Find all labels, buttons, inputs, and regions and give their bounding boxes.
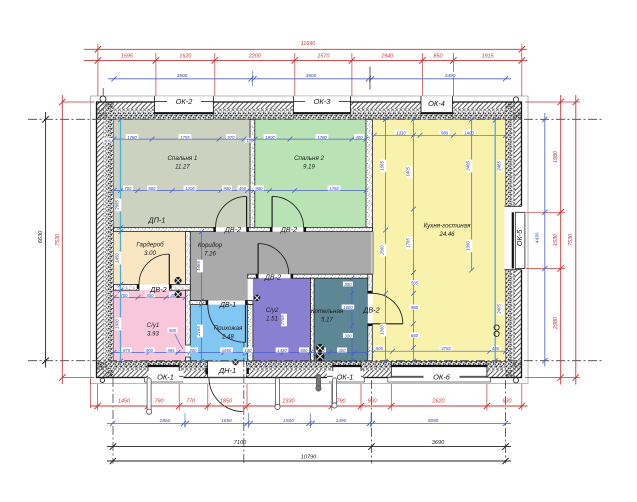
- svg-text:300: 300: [338, 348, 346, 353]
- svg-text:1650: 1650: [222, 348, 232, 353]
- svg-text:2620: 2620: [432, 398, 445, 404]
- svg-text:930: 930: [503, 398, 512, 404]
- svg-text:Спальня 1: Спальня 1: [167, 155, 197, 162]
- svg-text:2200: 2200: [248, 54, 261, 60]
- svg-text:Гардероб: Гардероб: [136, 242, 164, 249]
- svg-text:1.51: 1.51: [266, 317, 278, 323]
- svg-text:2980: 2980: [553, 317, 559, 330]
- svg-text:770: 770: [186, 398, 195, 404]
- svg-text:ДВ-2: ДВ-2: [264, 273, 281, 282]
- svg-text:700: 700: [124, 186, 132, 191]
- svg-text:ОК-1: ОК-1: [157, 372, 174, 381]
- svg-text:9.19: 9.19: [303, 165, 315, 171]
- svg-text:Котельная: Котельная: [311, 308, 344, 315]
- svg-text:1620: 1620: [179, 54, 191, 60]
- svg-text:ОК-3: ОК-3: [314, 97, 332, 106]
- svg-text:1400: 1400: [464, 130, 474, 135]
- svg-text:3.00: 3.00: [144, 251, 156, 257]
- svg-text:900: 900: [148, 186, 156, 191]
- svg-text:2465: 2465: [465, 161, 470, 172]
- svg-text:ОК-6: ОК-6: [433, 372, 451, 381]
- svg-text:2330: 2330: [282, 398, 295, 404]
- svg-text:6630: 6630: [38, 230, 44, 243]
- svg-text:1915: 1915: [482, 54, 495, 60]
- svg-text:1750: 1750: [329, 186, 339, 191]
- svg-text:2465: 2465: [497, 161, 502, 172]
- svg-text:505: 505: [411, 281, 419, 286]
- svg-text:ДВ-2: ДВ-2: [362, 306, 379, 315]
- svg-text:300: 300: [189, 348, 197, 353]
- svg-text:100: 100: [244, 348, 252, 353]
- svg-text:1600: 1600: [343, 305, 353, 310]
- svg-text:505: 505: [376, 346, 384, 351]
- svg-text:1450: 1450: [114, 253, 119, 263]
- svg-text:3690: 3690: [428, 418, 439, 424]
- svg-text:Кухня-гостиная: Кухня-гостиная: [424, 222, 471, 229]
- svg-text:790: 790: [155, 398, 164, 404]
- svg-text:985: 985: [167, 348, 175, 353]
- svg-text:1650: 1650: [221, 418, 232, 424]
- svg-text:3490: 3490: [445, 73, 456, 79]
- svg-text:ОК-5: ОК-5: [515, 229, 524, 246]
- svg-text:1500: 1500: [283, 418, 294, 424]
- svg-text:1060: 1060: [379, 325, 384, 335]
- svg-text:1930: 1930: [114, 319, 119, 329]
- svg-text:7100: 7100: [234, 440, 247, 446]
- svg-text:1800: 1800: [265, 135, 275, 140]
- svg-text:2405: 2405: [497, 304, 502, 315]
- svg-text:ДН-1: ДН-1: [218, 366, 236, 375]
- svg-text:1530: 1530: [553, 234, 559, 246]
- svg-text:1450: 1450: [118, 398, 130, 404]
- svg-text:3750: 3750: [441, 346, 451, 351]
- svg-text:860: 860: [411, 333, 419, 338]
- svg-text:10790: 10790: [301, 454, 317, 460]
- svg-text:2860: 2860: [159, 418, 171, 424]
- svg-text:1940: 1940: [381, 54, 393, 60]
- svg-text:700: 700: [120, 293, 128, 298]
- svg-text:1430: 1430: [277, 348, 287, 353]
- svg-text:ДВ-1: ДВ-1: [219, 300, 236, 309]
- svg-text:1310: 1310: [396, 130, 406, 135]
- svg-text:1780: 1780: [317, 135, 327, 140]
- svg-text:3800: 3800: [306, 73, 317, 79]
- svg-text:7.26: 7.26: [204, 252, 216, 258]
- svg-text:900: 900: [255, 186, 263, 191]
- svg-text:ОК-4: ОК-4: [428, 99, 445, 108]
- svg-text:5.17: 5.17: [321, 318, 333, 324]
- svg-text:400: 400: [104, 138, 111, 143]
- svg-text:850: 850: [434, 54, 443, 60]
- svg-text:ДВ-2: ДВ-2: [280, 225, 297, 234]
- svg-text:2985: 2985: [114, 200, 119, 211]
- svg-text:300: 300: [344, 334, 352, 339]
- svg-text:3800: 3800: [177, 73, 188, 79]
- svg-text:985: 985: [169, 328, 177, 333]
- svg-text:ДВ-2: ДВ-2: [224, 225, 241, 234]
- svg-text:1850: 1850: [220, 398, 232, 404]
- svg-text:900: 900: [368, 398, 377, 404]
- svg-text:1755: 1755: [180, 135, 190, 140]
- svg-text:1490: 1490: [336, 418, 347, 424]
- svg-text:1465: 1465: [196, 261, 201, 271]
- svg-text:Коридор: Коридор: [198, 242, 223, 249]
- svg-text:11.27: 11.27: [175, 165, 190, 171]
- svg-text:1405: 1405: [406, 167, 411, 177]
- svg-text:1780: 1780: [127, 135, 137, 140]
- svg-text:С/у1: С/у1: [147, 322, 160, 329]
- svg-text:300: 300: [344, 282, 352, 287]
- svg-text:980: 980: [411, 305, 419, 310]
- svg-text:790: 790: [337, 398, 346, 404]
- svg-text:4430: 4430: [535, 232, 541, 243]
- svg-text:1595: 1595: [121, 54, 134, 60]
- svg-text:24.46: 24.46: [438, 232, 455, 238]
- svg-text:ДП-1: ДП-1: [148, 216, 166, 225]
- svg-text:1980: 1980: [553, 151, 559, 163]
- svg-text:980: 980: [441, 130, 449, 135]
- svg-text:7530: 7530: [568, 234, 574, 246]
- svg-text:1865: 1865: [379, 161, 384, 171]
- svg-text:2165: 2165: [196, 326, 201, 337]
- svg-text:2785: 2785: [280, 315, 285, 326]
- svg-text:11690: 11690: [301, 41, 316, 47]
- svg-text:ОК-2: ОК-2: [176, 97, 193, 106]
- svg-text:ОК-1: ОК-1: [337, 372, 354, 381]
- svg-text:ДВ-2: ДВ-2: [149, 285, 166, 294]
- svg-text:975: 975: [123, 348, 131, 353]
- svg-text:450: 450: [239, 186, 247, 191]
- svg-text:400: 400: [355, 135, 363, 140]
- svg-text:900: 900: [223, 186, 231, 191]
- svg-text:900: 900: [146, 348, 154, 353]
- svg-text:Прихожая: Прихожая: [214, 325, 243, 332]
- svg-text:2060: 2060: [379, 245, 384, 256]
- svg-text:1200: 1200: [185, 186, 195, 191]
- svg-text:1765: 1765: [406, 238, 411, 248]
- svg-text:С/у2: С/у2: [266, 307, 279, 314]
- svg-text:7530: 7530: [55, 234, 61, 246]
- svg-text:970: 970: [227, 135, 235, 140]
- svg-text:3690: 3690: [432, 440, 445, 446]
- svg-text:2.48: 2.48: [221, 335, 234, 341]
- svg-text:1570: 1570: [317, 54, 329, 60]
- svg-text:3.93: 3.93: [147, 332, 159, 338]
- svg-text:1060: 1060: [465, 241, 470, 251]
- svg-text:800: 800: [300, 348, 308, 353]
- svg-text:Спальня 2: Спальня 2: [294, 155, 324, 162]
